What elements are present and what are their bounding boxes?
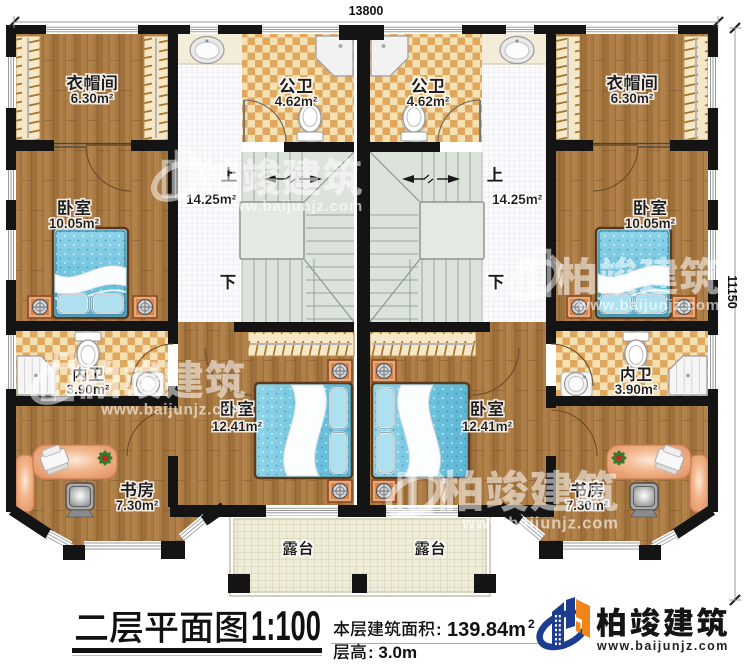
svg-text:11150: 11150 [725, 275, 739, 308]
svg-text:10.05m²: 10.05m² [49, 216, 100, 231]
svg-text:3.90m²: 3.90m² [615, 382, 658, 397]
svg-text:4.62m²: 4.62m² [407, 94, 450, 109]
svg-text:1:100: 1:100 [251, 602, 321, 649]
svg-text:13800: 13800 [349, 4, 384, 18]
svg-text:14.25m²: 14.25m² [492, 192, 543, 207]
svg-text:7.30m²: 7.30m² [116, 498, 159, 513]
svg-text::: : [436, 620, 442, 639]
svg-text:6.30m²: 6.30m² [71, 91, 114, 106]
svg-text:4.62m²: 4.62m² [275, 94, 318, 109]
svg-text:: 3.0m: : 3.0m [368, 643, 417, 662]
svg-text:2: 2 [528, 617, 535, 631]
svg-text:139.84m: 139.84m [447, 619, 526, 641]
svg-text:10.05m²: 10.05m² [625, 216, 676, 231]
svg-text:12.41m²: 12.41m² [462, 419, 513, 434]
svg-text:12.41m²: 12.41m² [212, 419, 263, 434]
svg-text:www.baijunjz.com: www.baijunjz.com [596, 639, 729, 653]
svg-text:6.30m²: 6.30m² [611, 91, 654, 106]
